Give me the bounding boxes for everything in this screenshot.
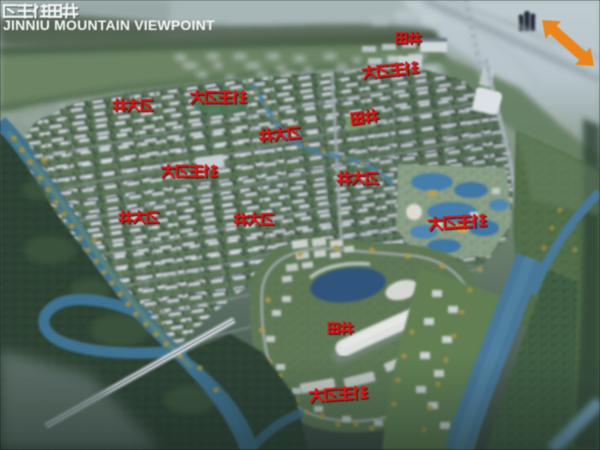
svg-text:JINNIU MOUNTAIN VIEWPOINT: JINNIU MOUNTAIN VIEWPOINT	[3, 17, 215, 33]
